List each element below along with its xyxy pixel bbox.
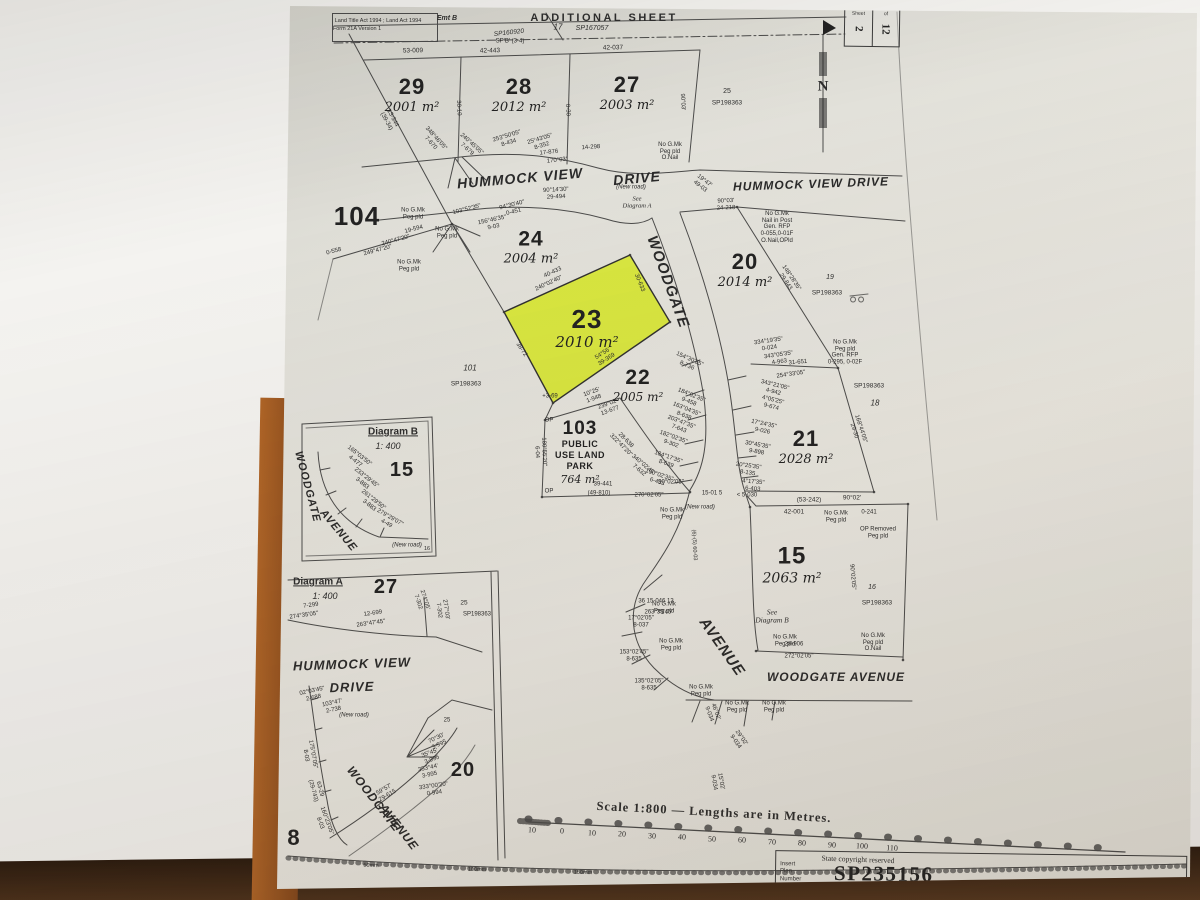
annotation: (49-810) [588,491,611,498]
lot-label-24: 242004 m² [504,229,559,266]
lot-label-27: 27 [374,577,398,597]
annotation: (New road) [685,505,715,512]
lot-label-15: 15 [390,460,414,480]
annotation: Diagram A [293,576,343,587]
annotation: 277°03' 7-302 [434,599,450,621]
annotation: 42-443 [480,47,500,55]
annotation: 19 [826,274,834,282]
annotation: Form 21A Version 1 [333,26,381,32]
annotation: No G.Mk Peg pld O.Nail [861,633,885,653]
annotation: 16 [868,584,876,592]
annotation: (New road) [616,185,646,192]
lot-label-27: 272003 m² [600,74,655,112]
annotation: No G.Mk Nail in Post Gen. RFP 0-055,0-01… [761,211,794,245]
north-arrow-icon [819,20,836,128]
annotation: 1: 400 [312,591,337,601]
annotation: 16 [424,546,430,552]
annotation: 39-441 [594,482,613,489]
sheet-number-box: Sheet 2 of 12 [844,9,901,48]
sheet-total-cell: of 12 [872,10,899,46]
survey-plan-photo: 292001 m²282012 m²272003 m²104242004 m²2… [0,0,1200,900]
annotation: 53-009 [403,47,423,55]
insert-plan-number-label: Insert Plan Number [776,861,820,884]
annotation: (53-242) [797,496,822,503]
annotation: +3-69 [542,394,558,401]
annotation: 25 [723,88,731,96]
annotation: No G.Mk Peg pld [689,684,713,697]
annotation: No G.Mk Peg pld [725,700,749,713]
annotation: See Diagram A [623,196,652,211]
lot-label-20: 20 [451,760,475,780]
annotation: 17°02'05" 8-037 [628,615,654,628]
annotation: 42-037 [603,44,623,52]
sheet-cell: Sheet 2 [845,10,873,46]
annotation: 15-01 5 [702,491,722,498]
annotation: No G.Mk Peg pld Gen. RFP 0-295, 0-02F [828,340,862,367]
annotation: SP198363 [451,380,481,387]
annotation: 1: 400 [375,441,400,451]
annotation: SP198363 [712,99,742,106]
annotation: No G.Mk Peg pld [401,207,425,220]
sheet-number: 2 [852,26,864,32]
annotation: 25 [444,718,451,725]
annotation: No G.Mk Peg pld O.Nail [658,142,682,162]
annotation: SP198363 [862,599,892,606]
annotation: 270°02'05" [634,493,663,500]
annotation: 90°02'05" [658,480,684,487]
annotation: (New road) [339,713,369,720]
annotation: 101 [463,365,476,374]
annotation: 17 [554,24,563,33]
annotation: 28-906 [785,642,804,649]
annotation: 90°03' [678,93,686,110]
lot-label-104: 104 [334,203,380,229]
sheet-total: 12 [880,24,892,35]
lot-label-23: 232010 m² [555,306,618,350]
annotation: OP Removed Peg pld [860,526,896,539]
annotation: 272°02'05" [784,654,813,661]
annotation: 80 [798,839,806,848]
lot-label-22: 222005 m² [613,367,664,403]
annotation: 10 [588,829,596,838]
annotation: 25 [460,599,467,606]
annotation: 90°03' 24-218 [716,198,735,212]
annotation: 30-10 [454,100,462,116]
annotation: Land Title Act 1994 ; Land Act 1994 [335,18,422,24]
street-label: HUMMOCK VIEW [293,655,412,672]
annotation: 15°02' 9-034 [709,773,725,792]
sheet-of-label: of [884,11,888,17]
annotation: 50 [708,835,716,844]
annotation: 30 [648,832,656,841]
annotation: 90°14'30" 29-494 [543,187,569,202]
lot-label-20: 202014 m² [718,251,773,289]
annotation: No G.Mk Peg pld [659,638,683,651]
lot-label-29: 292001 m² [385,76,440,114]
annotation: No G.Mk Peg pld [660,507,684,520]
annotation: SP198363 [812,289,842,296]
annotation: 0-241 [861,510,876,517]
annotation: 20 [618,830,626,839]
annotation: OP [545,418,554,425]
annotation: 100mm [468,867,486,873]
lot-label-28: 282012 m² [492,76,547,114]
annotation: Emt B [437,15,457,23]
annotation: < 5-030 [737,493,758,500]
annotation: SP198363 [854,382,884,389]
annotation: 42-001 [784,508,804,515]
annotation: No G.Mk Peg pld [762,700,786,713]
annotation: 150mm [574,870,592,876]
annotation: 4°17'35" 6-403 [741,478,764,493]
annotation: 135°02'05" 8-635 [634,678,663,691]
lot-label-15: 152063 m² [763,545,822,586]
sheet-label: Sheet [852,11,865,17]
annotation: 10 [528,826,536,835]
annotation: SP'B' (3-4) [496,39,525,46]
annotation: OP [545,489,554,496]
annotation: 40 [678,833,686,842]
annotation: 18 [871,400,880,409]
annotation: 0 [560,827,564,836]
annotation: No G.Mk Peg pld [397,259,421,272]
street-label: WOODGATE AVENUE [767,671,905,683]
annotation: 50mm [363,863,378,870]
lot-label-21: 212028 m² [779,428,834,466]
annotation: 153°02'45" 8-635 [619,649,648,662]
lot-label-8: 8 [287,827,300,849]
annotation: Diagram B [368,426,418,437]
annotation: SP198363 [463,612,491,619]
paper-sheet: 292001 m²282012 m²272003 m²104242004 m²2… [0,0,1200,900]
annotation: 60 [738,836,746,845]
annotation: See Diagram B [755,609,789,626]
annotation: SP167057 [576,25,609,33]
street-label: DRIVE [329,680,374,695]
lot-label-103: 103PUBLICUSE LANDPARK764 m² [555,419,605,485]
annotation: 180°55'20" 6-04 [533,437,547,466]
annotation: No G.Mk Peg pld [824,510,848,523]
annotation: ADDITIONAL SHEET [530,12,677,24]
annotation: No G.Mk Peg pld [435,226,459,239]
annotation: 90 [828,841,836,850]
annotation: 14-298 [581,144,600,152]
annotation: N [818,79,829,96]
annotation: (New road) [392,543,422,550]
annotation: 90°02' [843,494,861,501]
annotation: No G.Mk Peg pld [652,601,676,614]
annotation: 70 [768,838,776,847]
annotation: 0-30 [563,104,570,116]
